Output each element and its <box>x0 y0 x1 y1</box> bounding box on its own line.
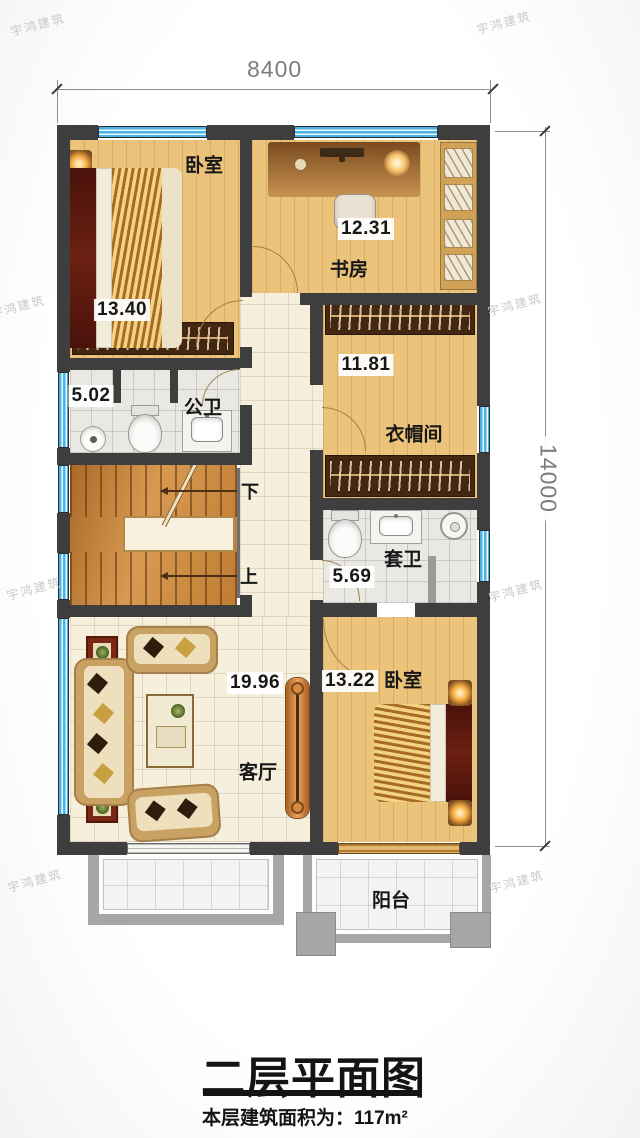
watermark: 宇鸿建筑 <box>9 9 68 40</box>
console-knob <box>291 801 304 814</box>
wall <box>70 358 240 370</box>
stair-direction-line-up <box>168 575 238 577</box>
top-dimension-value: 8400 <box>245 56 304 83</box>
window <box>294 126 438 138</box>
coffee-table-tray <box>156 726 186 748</box>
faucet <box>394 514 398 518</box>
coffee-table <box>146 694 194 768</box>
wall <box>240 125 252 297</box>
watermark: 宇鸿建筑 <box>486 289 545 320</box>
wall <box>57 513 70 553</box>
bookshelf-cell <box>444 254 473 281</box>
wall <box>477 582 490 855</box>
bed <box>374 704 472 802</box>
bookshelf-cell <box>444 148 473 178</box>
sink-vanity-icon <box>370 510 422 544</box>
window <box>479 406 490 453</box>
watermark: 宇鸿建筑 <box>487 575 546 606</box>
area-label-living: 19.96 <box>227 672 283 694</box>
balcony-post <box>296 912 336 956</box>
bed <box>70 168 182 348</box>
bookshelf <box>440 142 477 290</box>
tv-console <box>286 678 309 818</box>
bookshelf-cell <box>444 184 473 211</box>
floor-drain-icon <box>80 426 106 452</box>
washer-icon <box>440 512 468 540</box>
sliding-door <box>338 843 460 854</box>
room-label-study: 书房 <box>330 255 368 282</box>
window <box>479 530 490 582</box>
bed-pillows <box>430 704 446 802</box>
wall <box>240 405 252 465</box>
dimension-extension <box>490 80 491 123</box>
bookshelf-cell <box>444 219 473 248</box>
room-label-balcony: 阳台 <box>372 886 410 913</box>
wall <box>240 595 252 617</box>
bed-sheet <box>162 168 182 348</box>
window <box>58 372 69 448</box>
mug-icon <box>294 158 307 171</box>
room-label-ensuite: 套卫 <box>384 545 422 572</box>
stairs-down-label: 下 <box>241 478 259 504</box>
sofa-chaise <box>126 783 222 843</box>
room-label-public-bath: 公卫 <box>184 393 222 420</box>
wall <box>57 125 70 372</box>
watermark: 宇鸿建筑 <box>6 865 65 896</box>
wall <box>323 603 377 617</box>
top-dimension-line <box>57 89 493 90</box>
wall <box>477 453 490 530</box>
desk-lamp-icon <box>384 150 410 176</box>
stair-landing <box>123 516 235 552</box>
balcony-post <box>450 912 491 948</box>
window <box>98 126 207 138</box>
wall <box>460 842 490 855</box>
drain-center <box>90 436 97 443</box>
toilet-bowl <box>128 414 162 453</box>
plan-title: 二层平面图 <box>201 1042 426 1106</box>
watermark: 宇鸿建筑 <box>488 866 547 897</box>
monitor-icon <box>320 148 364 157</box>
wall <box>310 600 323 842</box>
tv-screen-line <box>296 694 299 802</box>
room-label-living: 客厅 <box>239 758 277 785</box>
area-label-cloakroom: 11.81 <box>339 354 394 376</box>
floor-area-note: 本层建筑面积为：117m² <box>202 1103 408 1130</box>
wall <box>477 125 490 406</box>
title-underline <box>203 1090 418 1096</box>
wall <box>310 498 490 510</box>
console-knob <box>291 682 304 695</box>
sink-basin <box>379 516 413 536</box>
wall <box>57 448 70 465</box>
sink-basin <box>191 417 224 442</box>
watermark: 宇鸿建筑 <box>475 7 534 38</box>
toilet-bowl <box>328 519 362 558</box>
wall <box>310 293 323 385</box>
bed-pillows <box>96 168 112 348</box>
washer-hub <box>450 522 460 532</box>
window <box>58 465 69 513</box>
bed-headboard <box>70 168 96 348</box>
bedside-lamp-icon <box>448 800 472 826</box>
right-dimension-value: 14000 <box>535 437 562 521</box>
sofa-long <box>74 658 134 806</box>
room-label-cloakroom: 衣帽间 <box>385 420 442 447</box>
wall <box>415 603 490 617</box>
wall <box>170 365 178 403</box>
area-label-bedroom-top: 13.40 <box>94 299 150 321</box>
stair-steps-lower <box>70 552 237 605</box>
area-label-ensuite: 5.69 <box>330 566 375 588</box>
wall <box>70 453 240 465</box>
plant-icon <box>96 646 109 659</box>
desk <box>268 142 420 197</box>
wall <box>300 293 477 305</box>
room-label-bedroom-bottom: 卧室 <box>384 666 422 693</box>
stair-arrowhead <box>160 487 168 495</box>
bed-blanket <box>112 168 162 348</box>
sofa-loveseat <box>126 626 218 674</box>
watermark: 宇鸿建筑 <box>0 291 47 322</box>
toilet-icon <box>328 510 362 558</box>
area-label-study: 12.31 <box>338 218 394 240</box>
wardrobe-hangers <box>330 461 469 491</box>
bed-blanket <box>374 704 430 802</box>
wall <box>240 347 252 368</box>
stairs-up-label: 上 <box>240 563 258 589</box>
toilet-icon <box>128 405 162 453</box>
wardrobe-hangers <box>330 303 469 330</box>
bed-headboard <box>446 704 472 802</box>
stair-direction-line-down <box>168 490 238 492</box>
window <box>58 618 69 815</box>
area-label-bedroom-bottom: 13.22 <box>322 670 378 692</box>
monitor-stand <box>339 157 345 162</box>
stair-arrowhead <box>160 572 168 580</box>
balcony-left <box>88 855 284 925</box>
floor-plan-page: 宇鸿建筑 宇鸿建筑 宇鸿建筑 宇鸿建筑 宇鸿建筑 宇鸿建筑 宇鸿建筑 宇鸿建筑 … <box>0 0 640 1138</box>
room-label-bedroom-top: 卧室 <box>185 151 223 178</box>
area-label-public-bath: 5.02 <box>69 385 114 407</box>
bedside-lamp-icon <box>448 680 472 706</box>
wall <box>113 365 121 403</box>
shower-partition <box>428 556 436 603</box>
balcony-window <box>127 843 250 854</box>
watermark: 宇鸿建筑 <box>5 573 64 604</box>
wall <box>57 605 240 617</box>
wall <box>250 842 338 855</box>
cloakroom-rack-bottom <box>325 455 475 497</box>
wall <box>57 842 127 855</box>
plant-icon <box>171 704 185 718</box>
wall <box>310 450 323 560</box>
